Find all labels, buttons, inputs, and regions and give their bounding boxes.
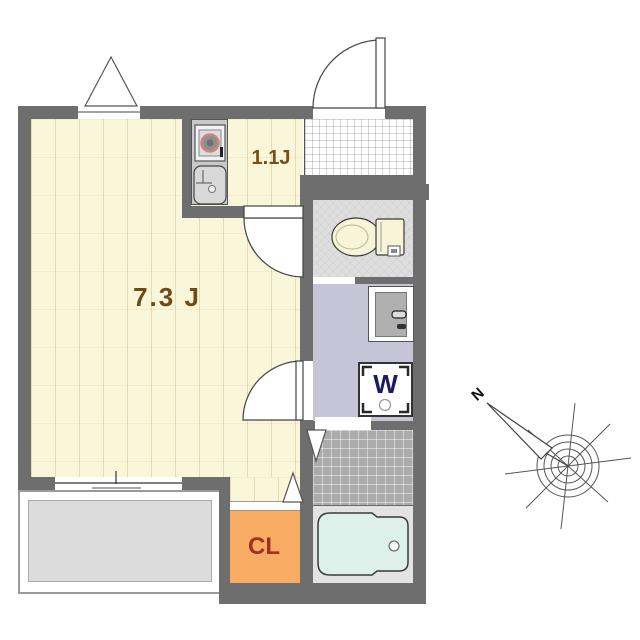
toilet-room-floor: [313, 200, 413, 277]
door-arc-entrance: [313, 40, 381, 108]
compass-rose-icon: [505, 403, 631, 529]
washing-machine-icon: W: [358, 362, 413, 417]
living-room-label: 7.3 J: [97, 282, 237, 313]
door-leaf-entrance: [376, 38, 385, 108]
bathroom-floor: [313, 430, 413, 505]
washer-label: W: [373, 371, 398, 397]
entrance-door-opening: [313, 106, 385, 119]
wall-door-stopper: [425, 184, 429, 200]
closet-opening: [230, 501, 300, 511]
wall: [355, 277, 413, 284]
wall: [219, 583, 426, 604]
washroom-door-opening: [300, 361, 313, 420]
wall: [182, 206, 244, 218]
wall: [182, 119, 191, 218]
wall: [18, 106, 31, 487]
north-arrow-icon: [487, 403, 568, 466]
north-label: N: [465, 381, 491, 407]
balcony-window-opening: [55, 477, 182, 490]
wall: [413, 106, 426, 604]
room-living-floor-strip: [230, 477, 300, 501]
bathroom-door-opening: [315, 417, 371, 430]
vanity-basin: [375, 292, 407, 337]
bathtub-platform: [313, 505, 413, 584]
wall: [300, 175, 413, 200]
closet-label: CL: [229, 533, 299, 561]
toilet-door-opening: [313, 277, 355, 284]
balcony-floor: [28, 500, 212, 582]
floor-plan: W: [0, 0, 640, 640]
window-opening-top: [78, 106, 140, 119]
kitchen-label: 1.1J: [236, 147, 306, 170]
window-triangle-marker: [85, 57, 137, 106]
kitchen-counter: [191, 119, 228, 205]
entry-floor: [304, 119, 414, 175]
